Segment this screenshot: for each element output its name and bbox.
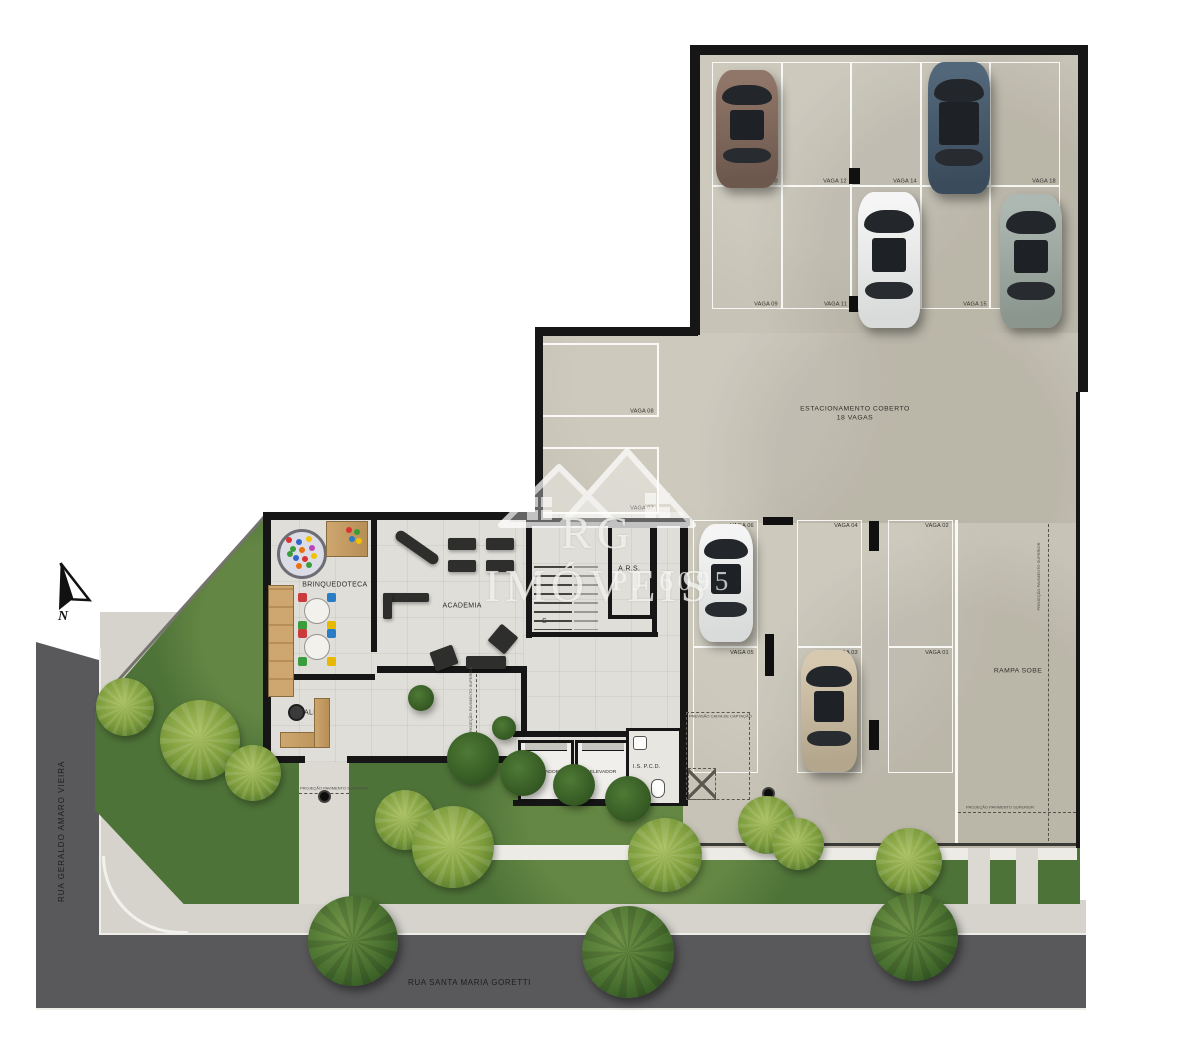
- palm-8: [772, 818, 824, 870]
- car-sedan-beige: [801, 650, 857, 772]
- floor-plan: RUA GERALDO AMARO VIEIRA RUA SANTA MARIA…: [0, 0, 1200, 1063]
- catchbox-square: [688, 768, 716, 800]
- north-label: N: [57, 609, 69, 624]
- palm-6: [628, 818, 702, 892]
- garden-projection-note: PROJEÇÃO PAVIMENTO SUPERIOR: [966, 805, 1034, 810]
- car-sunroof: [730, 110, 764, 140]
- car-suv-brown: [716, 70, 778, 188]
- stall-label: VAGA 08: [630, 408, 654, 414]
- parking-title-block: ESTACIONAMENTO COBERTO 18 VAGAS: [770, 404, 940, 422]
- stall-label: VAGA 05: [730, 649, 754, 655]
- palm-3: [225, 745, 281, 801]
- car-sedan-white: [858, 192, 920, 328]
- drain-1: [318, 790, 331, 803]
- stall-label: VAGA 01: [925, 649, 949, 655]
- walkway-entrance: [299, 757, 349, 904]
- ramp-projection-dashed: [1048, 524, 1049, 846]
- walkway-gap-2: [1016, 846, 1038, 904]
- reception-desk-v: [314, 698, 330, 748]
- wall-brinq-academia: [371, 520, 377, 652]
- kids-table-1: [304, 598, 330, 624]
- palm-9: [876, 828, 942, 894]
- catchbox-note: PREVISÃO CAIXA DE CAPTAÇÃO: [689, 714, 752, 719]
- street-name-bottom: RUA SANTA MARIA GORETTI: [408, 978, 531, 987]
- walkway-gap-1: [968, 846, 990, 904]
- lower-pillar-3: [869, 521, 879, 551]
- lower-pillar-4: [869, 720, 879, 750]
- car-sunroof: [872, 238, 906, 272]
- stall-label: VAGA 18: [1032, 177, 1056, 183]
- parking-title: ESTACIONAMENTO COBERTO: [783, 405, 928, 413]
- wall-stairs-south: [528, 632, 658, 637]
- stall-label: VAGA 09: [754, 301, 778, 307]
- lower-pillar-1: [763, 517, 793, 525]
- toys: [346, 527, 352, 533]
- stall-label: VAGA 04: [834, 522, 858, 528]
- watermark-registration: PJ 6095: [612, 566, 733, 597]
- ramp-label: RAMPA SOBE: [970, 667, 1065, 675]
- office-chair: [288, 704, 305, 721]
- room-label-is-pcd: I.S. P.C.D.: [633, 763, 660, 769]
- stall-vaga-04: VAGA 04: [797, 520, 862, 647]
- stall-vaga-18: VAGA 18: [990, 62, 1060, 186]
- wall-garage-right: [1078, 45, 1088, 392]
- palm-1: [96, 678, 154, 736]
- car-sedan-silver: [1000, 194, 1062, 328]
- stall-label: VAGA 15: [963, 301, 987, 307]
- room-label-brinquedoteca: BRINQUEDOTECA: [302, 580, 367, 588]
- car-sunroof: [814, 691, 844, 722]
- stall-vaga-14: VAGA 14: [851, 62, 921, 186]
- ramp-edge-line: [955, 520, 958, 846]
- bush-1: [447, 732, 499, 784]
- car-sunroof: [1014, 240, 1048, 274]
- stall-vaga-12: VAGA 12: [782, 62, 852, 186]
- bush-4: [605, 776, 651, 822]
- sidewalk-tree-1: [308, 896, 398, 986]
- elevator-door: [525, 743, 567, 751]
- stall-vaga-09: VAGA 09: [712, 186, 782, 310]
- wall-garage-left: [690, 45, 700, 335]
- stall-vaga-08: VAGA 08: [540, 343, 659, 417]
- stall-vaga-11: VAGA 11: [782, 186, 852, 310]
- garden-projection-dashed: [958, 812, 1076, 813]
- north-arrow: N: [38, 556, 98, 626]
- parking-subtitle: 18 VAGAS: [783, 414, 928, 422]
- sidewalk-tree-3: [870, 893, 958, 981]
- kids-table-2: [304, 634, 330, 660]
- elevator-door: [582, 743, 624, 751]
- lower-stall-col-3: VAGA 02 VAGA 01: [888, 520, 953, 773]
- stall-vaga-01: VAGA 01: [888, 647, 953, 774]
- ramp-projection-note: PROJEÇÃO PAVIMENTO SUPERIOR: [1036, 556, 1041, 611]
- ball-pit: [277, 529, 327, 579]
- wall-corridor-west: [521, 666, 527, 733]
- stall-vaga-02: VAGA 02: [888, 520, 953, 647]
- bench: [268, 585, 294, 697]
- garage-pillar-1: [849, 168, 860, 184]
- wall-step: [535, 327, 698, 336]
- lower-pillar-2: [765, 634, 774, 676]
- bush-3: [553, 764, 595, 806]
- hall-plant-1: [408, 685, 434, 711]
- wall-garage-top: [690, 45, 1088, 55]
- car-suv-blue: [928, 62, 990, 194]
- bush-2: [500, 750, 546, 796]
- stall-vaga-15: VAGA 15: [921, 186, 991, 310]
- hall-plant-2: [492, 716, 516, 740]
- stall-label: VAGA 02: [925, 522, 949, 528]
- walkway-projection-note: PROJEÇÃO PAVIMENTO SUPERIOR: [300, 786, 368, 791]
- wc-toilet: [651, 779, 665, 798]
- wc-sink: [633, 736, 647, 750]
- street-name-left: RUA GERALDO AMARO VIEIRA: [57, 752, 66, 902]
- curb-street-outer: [36, 1008, 1086, 1010]
- stall-label: VAGA 14: [893, 177, 917, 183]
- stall-label: VAGA 12: [824, 177, 848, 183]
- palm-5: [412, 806, 494, 888]
- corridor-projection-note: PROJEÇÃO PAVIMENTO SUPERIOR: [468, 696, 473, 735]
- stall-label: VAGA 11: [824, 301, 847, 307]
- gym-bench-upright: [383, 593, 392, 619]
- sidewalk-tree-2: [582, 906, 674, 998]
- wall-right-thin: [1076, 392, 1080, 848]
- car-sunroof: [939, 102, 980, 146]
